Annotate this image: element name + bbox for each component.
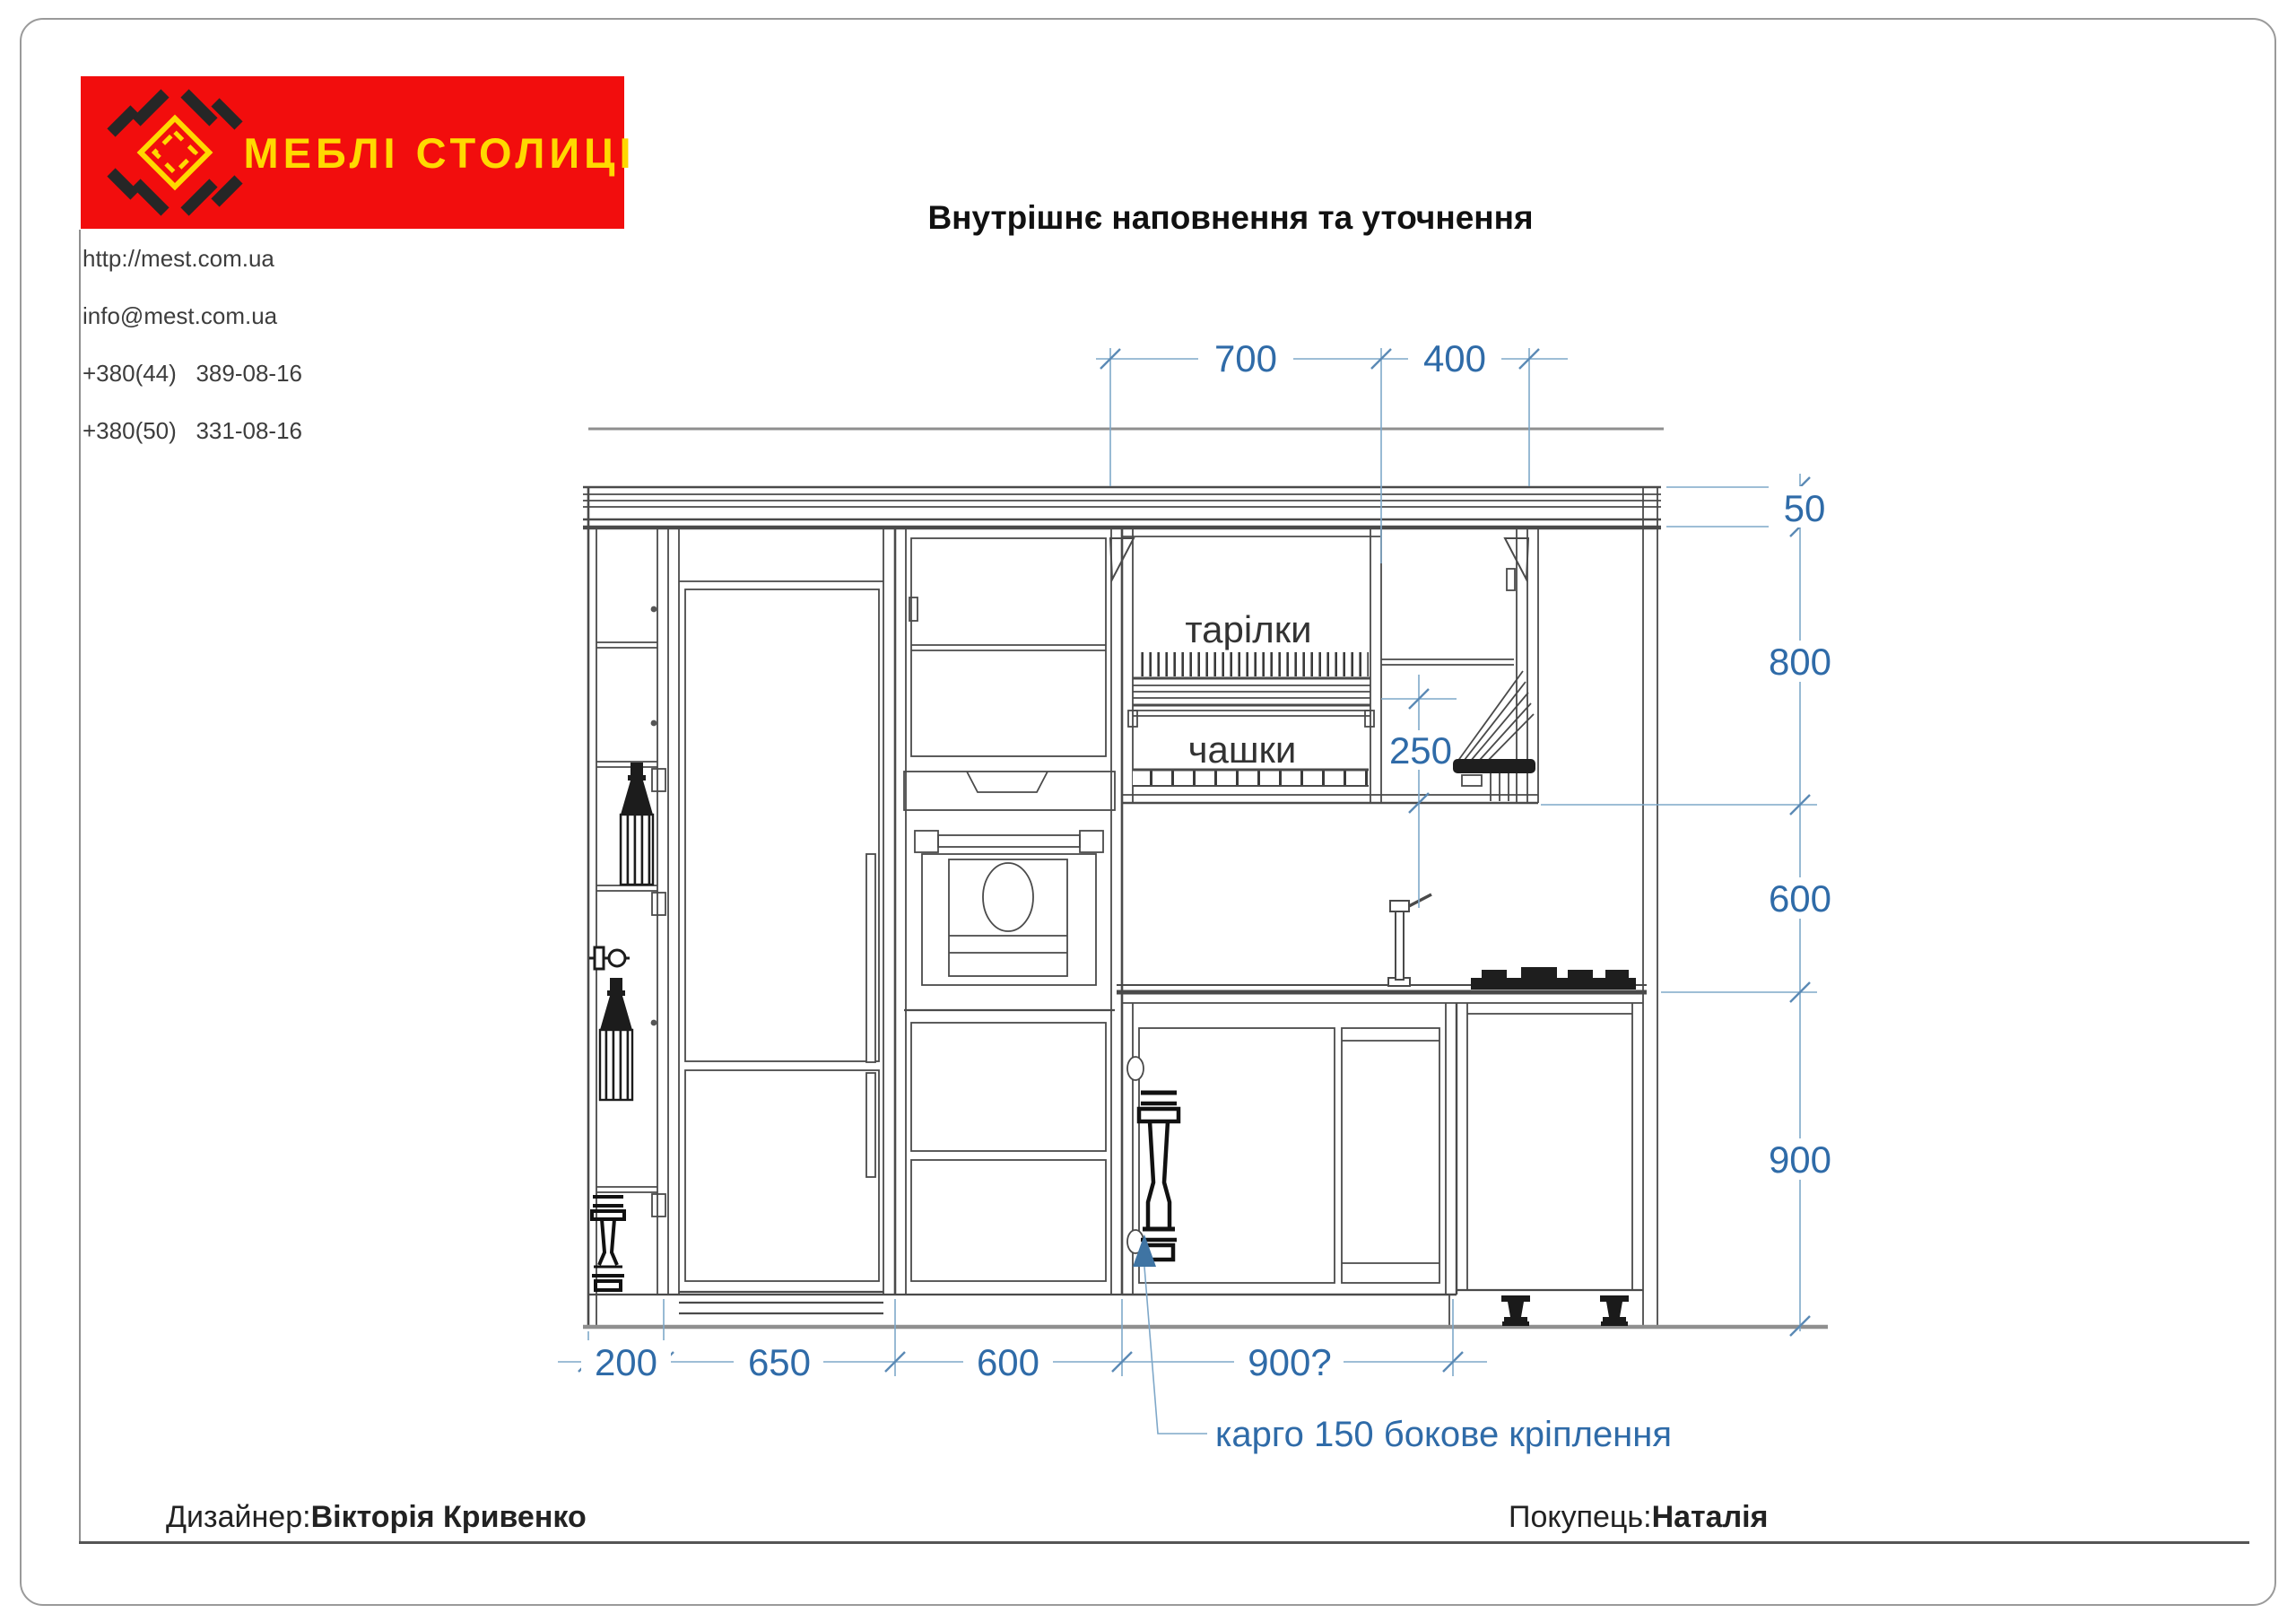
kitchen-elevation-drawing: 700 400 50 800 600 900 200 650 600 900? … [0,0,2296,1622]
dim-top-700: 700 [1214,337,1277,379]
cargo-bottle-icon [1139,1093,1178,1260]
plates-label: тарілки [1185,608,1311,650]
wine-bottle-icon [600,978,632,1100]
dimension-lines [558,348,1817,1434]
left-shelf-column [588,487,668,1326]
oven-column [904,528,1122,1295]
dimension-labels: 700 400 50 800 600 900 200 650 600 900? … [595,337,1831,1454]
cargo-note: карго 150 бокове кріплення [1215,1415,1672,1454]
dim-cups-250: 250 [1389,729,1452,772]
customer-field: Покупець:Наталія [1509,1500,1768,1535]
plinth-and-floor [583,1295,1828,1327]
cabinet-structure [583,429,1828,1327]
dim-right-800: 800 [1769,641,1831,683]
designer-label: Дизайнер: [166,1500,311,1534]
cabinet-legs-icon [1501,1295,1629,1326]
cooktop-icon [1471,967,1636,990]
cups-label: чашки [1188,728,1297,771]
cooktop-base-cabinet [1457,1003,1643,1290]
designer-name: Вікторія Кривенко [311,1500,587,1534]
dimension-ticks [578,349,1810,1372]
dim-bottom-650: 650 [748,1341,811,1383]
valve-icon [589,947,630,969]
drawn-items [589,763,1636,1326]
footer-rule [79,1541,2249,1544]
wine-bottle-icon [621,763,653,885]
dim-bottom-200: 200 [595,1341,657,1383]
content-labels: тарілки чашки [1185,608,1311,771]
designer-field: Дизайнер:Вікторія Кривенко [166,1500,587,1535]
dim-bottom-600: 600 [977,1341,1039,1383]
dim-right-50: 50 [1784,487,1826,529]
faucet [1388,894,1431,986]
right-side-panel [1643,487,1657,1326]
customer-label: Покупець: [1509,1500,1652,1534]
dim-right-900: 900 [1769,1138,1831,1181]
dim-top-400: 400 [1423,337,1486,379]
dim-bottom-900q: 900? [1248,1341,1331,1383]
fridge-cabinet [679,528,895,1313]
customer-name: Наталія [1652,1500,1769,1534]
dim-right-600: 600 [1769,877,1831,920]
